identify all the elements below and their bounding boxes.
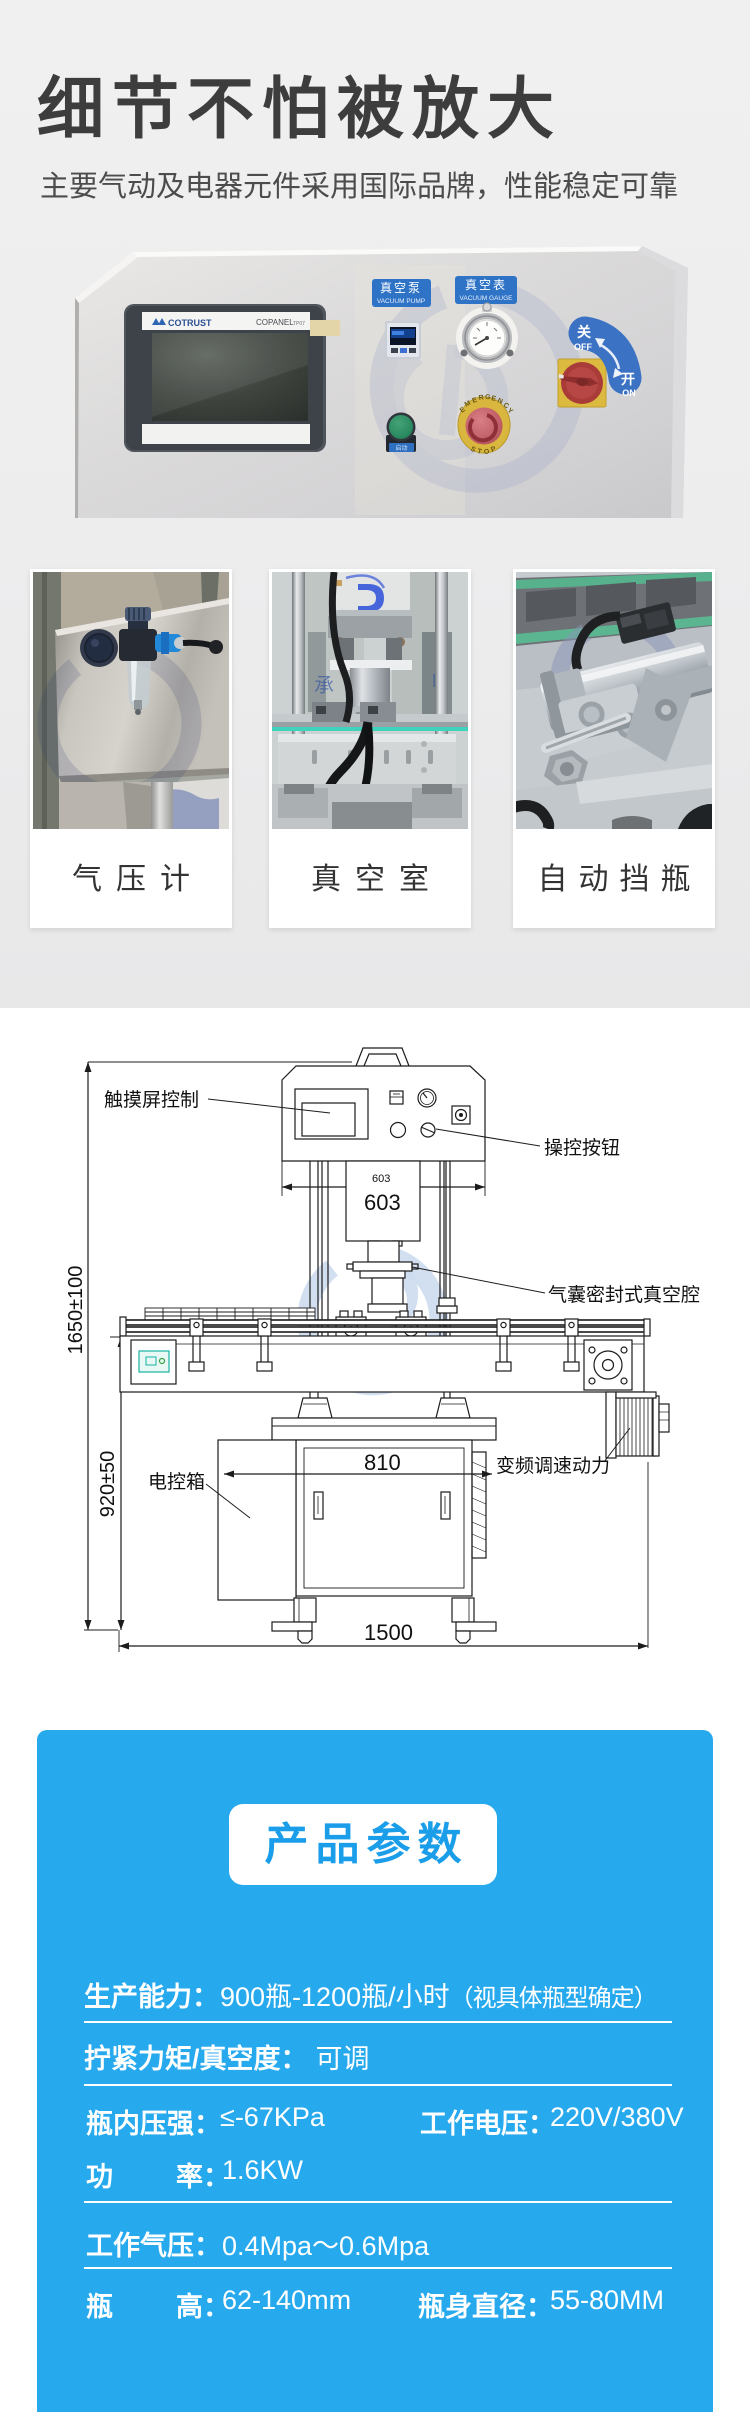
svg-text:603: 603 [364,1190,401,1215]
svg-text:开: 开 [621,371,635,387]
svg-text:启动: 启动 [395,444,407,452]
svg-text:真空表: 真空表 [465,278,507,292]
svg-text:1500: 1500 [364,1620,413,1645]
svg-text:气囊密封式真空腔: 气囊密封式真空腔 [548,1284,700,1306]
svg-text:COTRUST: COTRUST [168,318,212,328]
svg-text:变频调速动力: 变频调速动力 [496,1455,610,1477]
svg-text:OFF: OFF [574,342,592,352]
svg-text:触摸屏控制: 触摸屏控制 [104,1089,199,1111]
svg-text:ON: ON [622,388,636,398]
svg-text:O: O [484,449,490,456]
svg-text:关: 关 [577,324,591,340]
svg-text:1650±100: 1650±100 [65,1266,87,1355]
svg-text:603: 603 [372,1173,390,1185]
svg-text:电控箱: 电控箱 [148,1471,205,1493]
svg-text:810: 810 [364,1450,401,1475]
svg-text:承: 承 [314,674,334,697]
svg-text:R: R [478,394,484,402]
svg-text:VACUUM GAUGE: VACUUM GAUGE [460,295,514,302]
svg-text:VACUUM PUMP: VACUUM PUMP [377,298,425,305]
svg-text:COPANEL: COPANEL [256,318,294,327]
svg-text:操控按钮: 操控按钮 [544,1137,620,1159]
svg-text:920±50: 920±50 [97,1451,119,1518]
svg-text:TP07: TP07 [293,321,305,327]
svg-text:真空泵: 真空泵 [380,281,422,295]
